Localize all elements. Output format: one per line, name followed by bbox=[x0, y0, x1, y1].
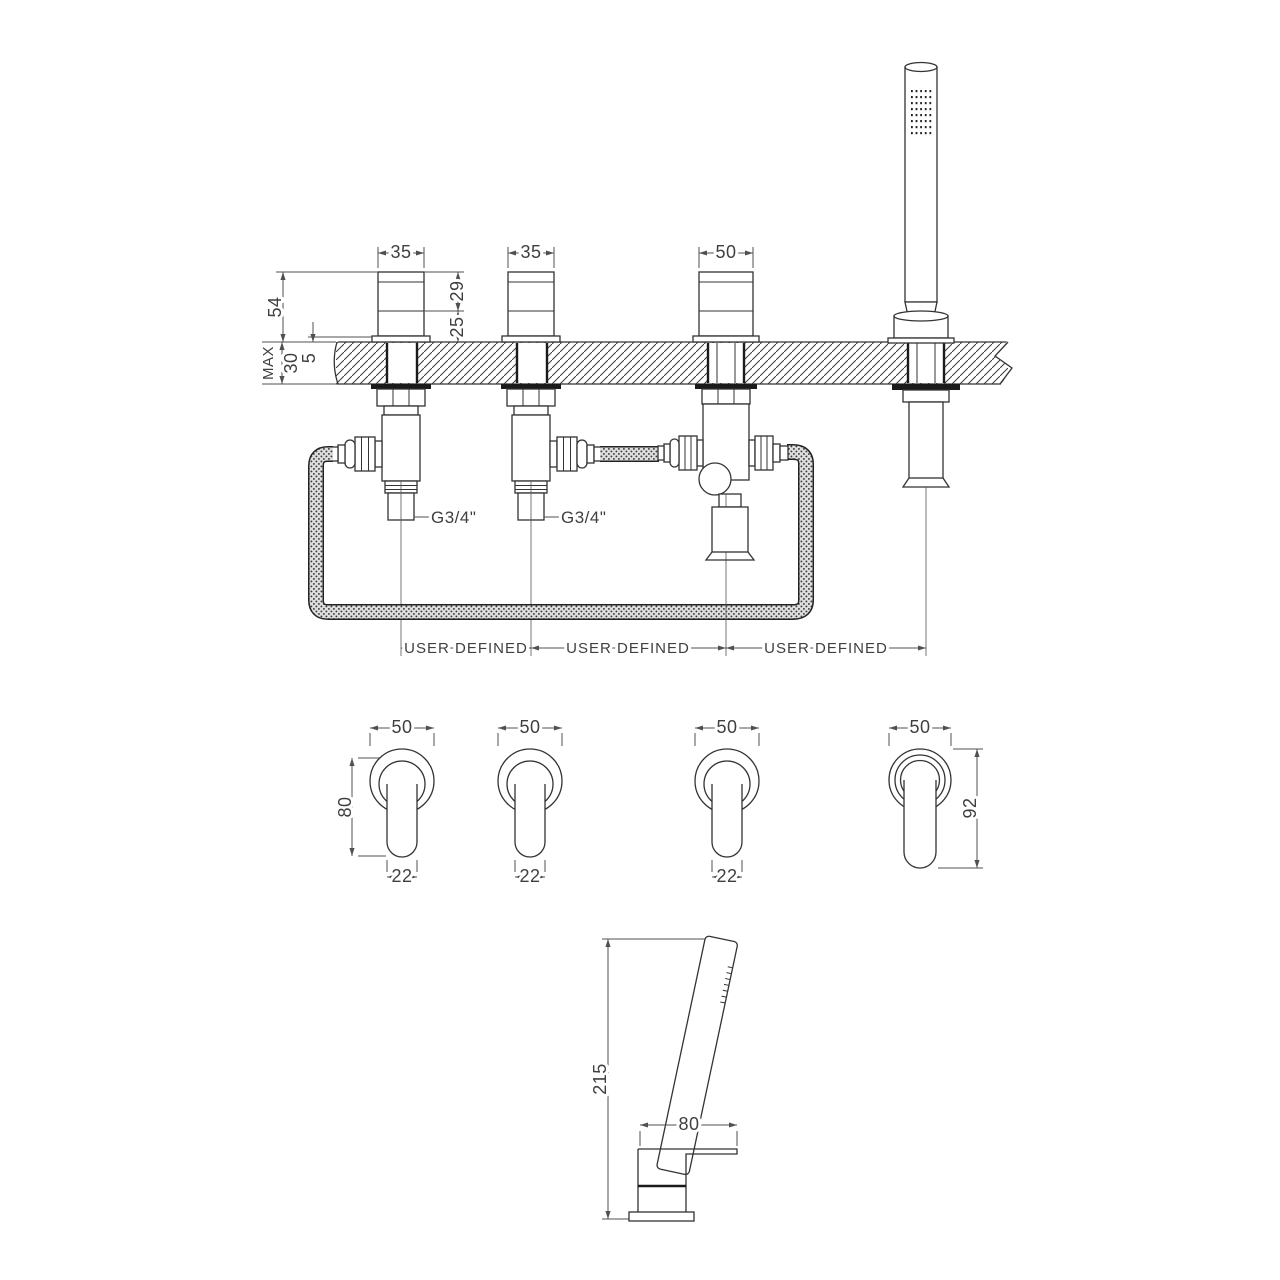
diverter-trim bbox=[693, 272, 759, 342]
thread-label-2: G3/4" bbox=[561, 508, 606, 527]
dim-lower-section: 25 bbox=[447, 316, 467, 337]
installation-side-view: 35 35 50 54 29 25 MAX 30 5 bbox=[260, 63, 1022, 658]
mounting-deck bbox=[324, 340, 1022, 386]
dim-cradle-width: 80 bbox=[678, 1114, 699, 1134]
dim-deck-thickness: 30 bbox=[281, 352, 301, 373]
handle-front-views: 50 80 22 50 22 50 bbox=[335, 717, 983, 886]
spray-face bbox=[911, 90, 933, 136]
handshower-hose bbox=[909, 402, 943, 478]
spacing-label-3: USER DEFINED bbox=[764, 640, 888, 657]
dim-upper-section: 29 bbox=[447, 280, 467, 301]
handle-lever bbox=[387, 784, 417, 857]
handshower-hose-flare bbox=[903, 478, 949, 487]
thread-labels: G3/4" G3/4" bbox=[414, 508, 606, 527]
valve-trim-1 bbox=[372, 272, 430, 342]
handshower-top bbox=[905, 63, 937, 72]
dim-handle-height: 80 bbox=[335, 796, 355, 817]
dim-lever-width-1: 22 bbox=[391, 866, 412, 886]
handset-tilted bbox=[656, 936, 738, 1176]
technical-drawing-page: 35 35 50 54 29 25 MAX 30 5 bbox=[0, 0, 1280, 1280]
handset-holder-front-view: 50 92 bbox=[889, 717, 983, 868]
diverter-ball bbox=[699, 463, 731, 495]
handle-front-1: 50 80 22 bbox=[335, 717, 434, 886]
diverter-hose-flare bbox=[706, 552, 754, 560]
handset-side-view: 215 80 bbox=[590, 936, 738, 1221]
handle-lever bbox=[515, 784, 545, 857]
bath-mixer-installation-diagram: 35 35 50 54 29 25 MAX 30 5 bbox=[0, 0, 1280, 1280]
dim-width-1: 35 bbox=[390, 242, 411, 262]
cradle-base bbox=[629, 1212, 694, 1221]
handshower-shank bbox=[892, 384, 960, 656]
diverter-outlet-hose bbox=[712, 507, 748, 552]
dim-handle-width-1: 50 bbox=[391, 717, 412, 737]
dim-handle-width-2: 50 bbox=[519, 717, 540, 737]
handle-lever bbox=[712, 784, 742, 857]
dim-width-3: 50 bbox=[715, 242, 736, 262]
handle-front-2: 50 22 bbox=[498, 717, 562, 886]
spacing-label-2: USER DEFINED bbox=[566, 640, 690, 657]
handshower bbox=[888, 63, 954, 344]
dim-lever-width-2: 22 bbox=[519, 866, 540, 886]
dim-holder-height: 92 bbox=[960, 797, 980, 818]
dim-width-2: 35 bbox=[520, 242, 541, 262]
dim-handset-height: 215 bbox=[590, 1063, 610, 1095]
dim-handle-width-3: 50 bbox=[716, 717, 737, 737]
handle-front-3: 50 22 bbox=[695, 717, 759, 886]
spacing-label-1: USER DEFINED bbox=[404, 640, 528, 657]
handset-front bbox=[904, 780, 936, 868]
dim-flange-height: 5 bbox=[299, 353, 319, 364]
valve-trim-2 bbox=[502, 272, 560, 342]
dim-total-height: 54 bbox=[265, 296, 285, 317]
dim-deck-max: MAX bbox=[260, 346, 277, 380]
dim-holder-width: 50 bbox=[909, 717, 930, 737]
thread-label-1: G3/4" bbox=[431, 508, 476, 527]
dim-lever-width-3: 22 bbox=[716, 866, 737, 886]
spacing-dimensions: USER DEFINED USER DEFINED USER DEFINED bbox=[401, 640, 926, 657]
